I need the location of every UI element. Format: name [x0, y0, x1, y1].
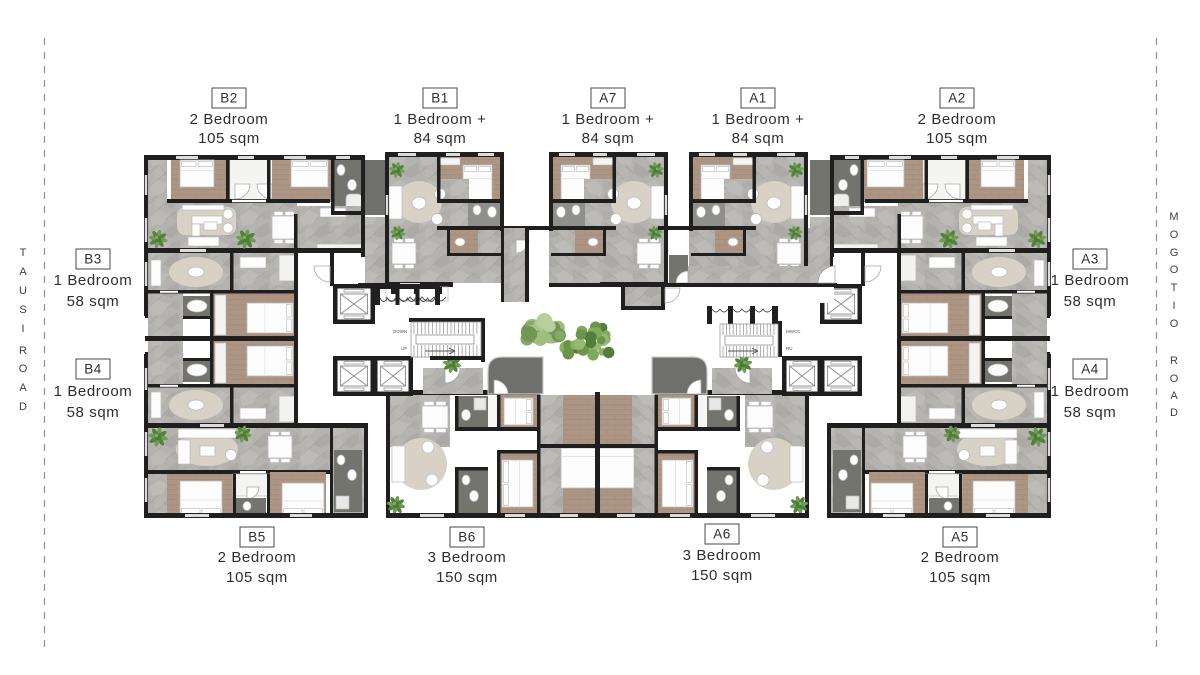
svg-text:T: T — [20, 247, 27, 259]
svg-text:RU: RU — [786, 346, 793, 351]
svg-text:84 sqm: 84 sqm — [732, 130, 785, 147]
svg-text:B2: B2 — [220, 91, 238, 106]
svg-text:105 sqm: 105 sqm — [198, 130, 260, 147]
svg-text:DOWN: DOWN — [393, 329, 407, 334]
svg-text:I: I — [1172, 300, 1175, 312]
svg-text:B3: B3 — [84, 252, 102, 267]
svg-text:O: O — [19, 363, 28, 375]
svg-text:D: D — [19, 401, 27, 413]
svg-text:T: T — [1171, 282, 1178, 294]
svg-text:3 Bedroom: 3 Bedroom — [683, 547, 762, 564]
svg-text:S: S — [19, 304, 26, 316]
svg-text:D: D — [1170, 407, 1178, 419]
svg-text:58 sqm: 58 sqm — [1064, 404, 1117, 421]
svg-text:A1: A1 — [749, 91, 767, 106]
svg-text:A4: A4 — [1081, 362, 1099, 377]
svg-text:O: O — [1170, 229, 1179, 241]
svg-text:2 Bedroom: 2 Bedroom — [190, 111, 269, 128]
svg-text:2 Bedroom: 2 Bedroom — [218, 549, 297, 566]
svg-text:105 sqm: 105 sqm — [926, 130, 988, 147]
svg-text:2 Bedroom: 2 Bedroom — [918, 111, 997, 128]
svg-text:150 sqm: 150 sqm — [436, 569, 498, 586]
svg-text:A: A — [19, 382, 27, 394]
svg-text:R: R — [19, 345, 27, 357]
svg-text:O: O — [1170, 373, 1179, 385]
svg-text:A6: A6 — [713, 527, 731, 542]
svg-text:105 sqm: 105 sqm — [929, 569, 991, 586]
svg-text:A3: A3 — [1081, 252, 1099, 267]
svg-text:58 sqm: 58 sqm — [67, 404, 120, 421]
svg-text:B4: B4 — [84, 362, 102, 377]
svg-text:M: M — [1169, 211, 1178, 223]
svg-text:B5: B5 — [248, 530, 266, 545]
svg-text:UP: UP — [401, 346, 407, 351]
svg-text:U: U — [19, 285, 27, 297]
svg-text:1 Bedroom: 1 Bedroom — [1051, 383, 1130, 400]
svg-text:O: O — [1170, 264, 1179, 276]
svg-text:58 sqm: 58 sqm — [67, 293, 120, 310]
svg-text:R: R — [1170, 355, 1178, 367]
svg-text:3 Bedroom: 3 Bedroom — [428, 549, 507, 566]
svg-text:1 Bedroom +: 1 Bedroom + — [394, 111, 487, 128]
svg-text:B6: B6 — [458, 530, 476, 545]
svg-text:O: O — [1170, 318, 1179, 330]
svg-text:1 Bedroom: 1 Bedroom — [54, 272, 133, 289]
svg-text:MWCC: MWCC — [786, 329, 801, 334]
svg-text:A2: A2 — [948, 91, 966, 106]
svg-text:2 Bedroom: 2 Bedroom — [921, 549, 1000, 566]
svg-text:105 sqm: 105 sqm — [226, 569, 288, 586]
svg-text:A7: A7 — [599, 91, 617, 106]
svg-text:B1: B1 — [431, 91, 449, 106]
svg-text:84 sqm: 84 sqm — [414, 130, 467, 147]
svg-text:150 sqm: 150 sqm — [691, 567, 753, 584]
svg-text:1 Bedroom +: 1 Bedroom + — [712, 111, 805, 128]
svg-text:1 Bedroom: 1 Bedroom — [1051, 272, 1130, 289]
svg-text:84 sqm: 84 sqm — [582, 130, 635, 147]
svg-text:1 Bedroom: 1 Bedroom — [54, 383, 133, 400]
svg-text:58 sqm: 58 sqm — [1064, 293, 1117, 310]
svg-text:A: A — [1170, 390, 1178, 402]
svg-text:I: I — [21, 323, 24, 335]
svg-text:A5: A5 — [951, 530, 969, 545]
svg-text:1 Bedroom +: 1 Bedroom + — [562, 111, 655, 128]
svg-text:A: A — [19, 266, 27, 278]
svg-text:G: G — [1170, 247, 1179, 259]
